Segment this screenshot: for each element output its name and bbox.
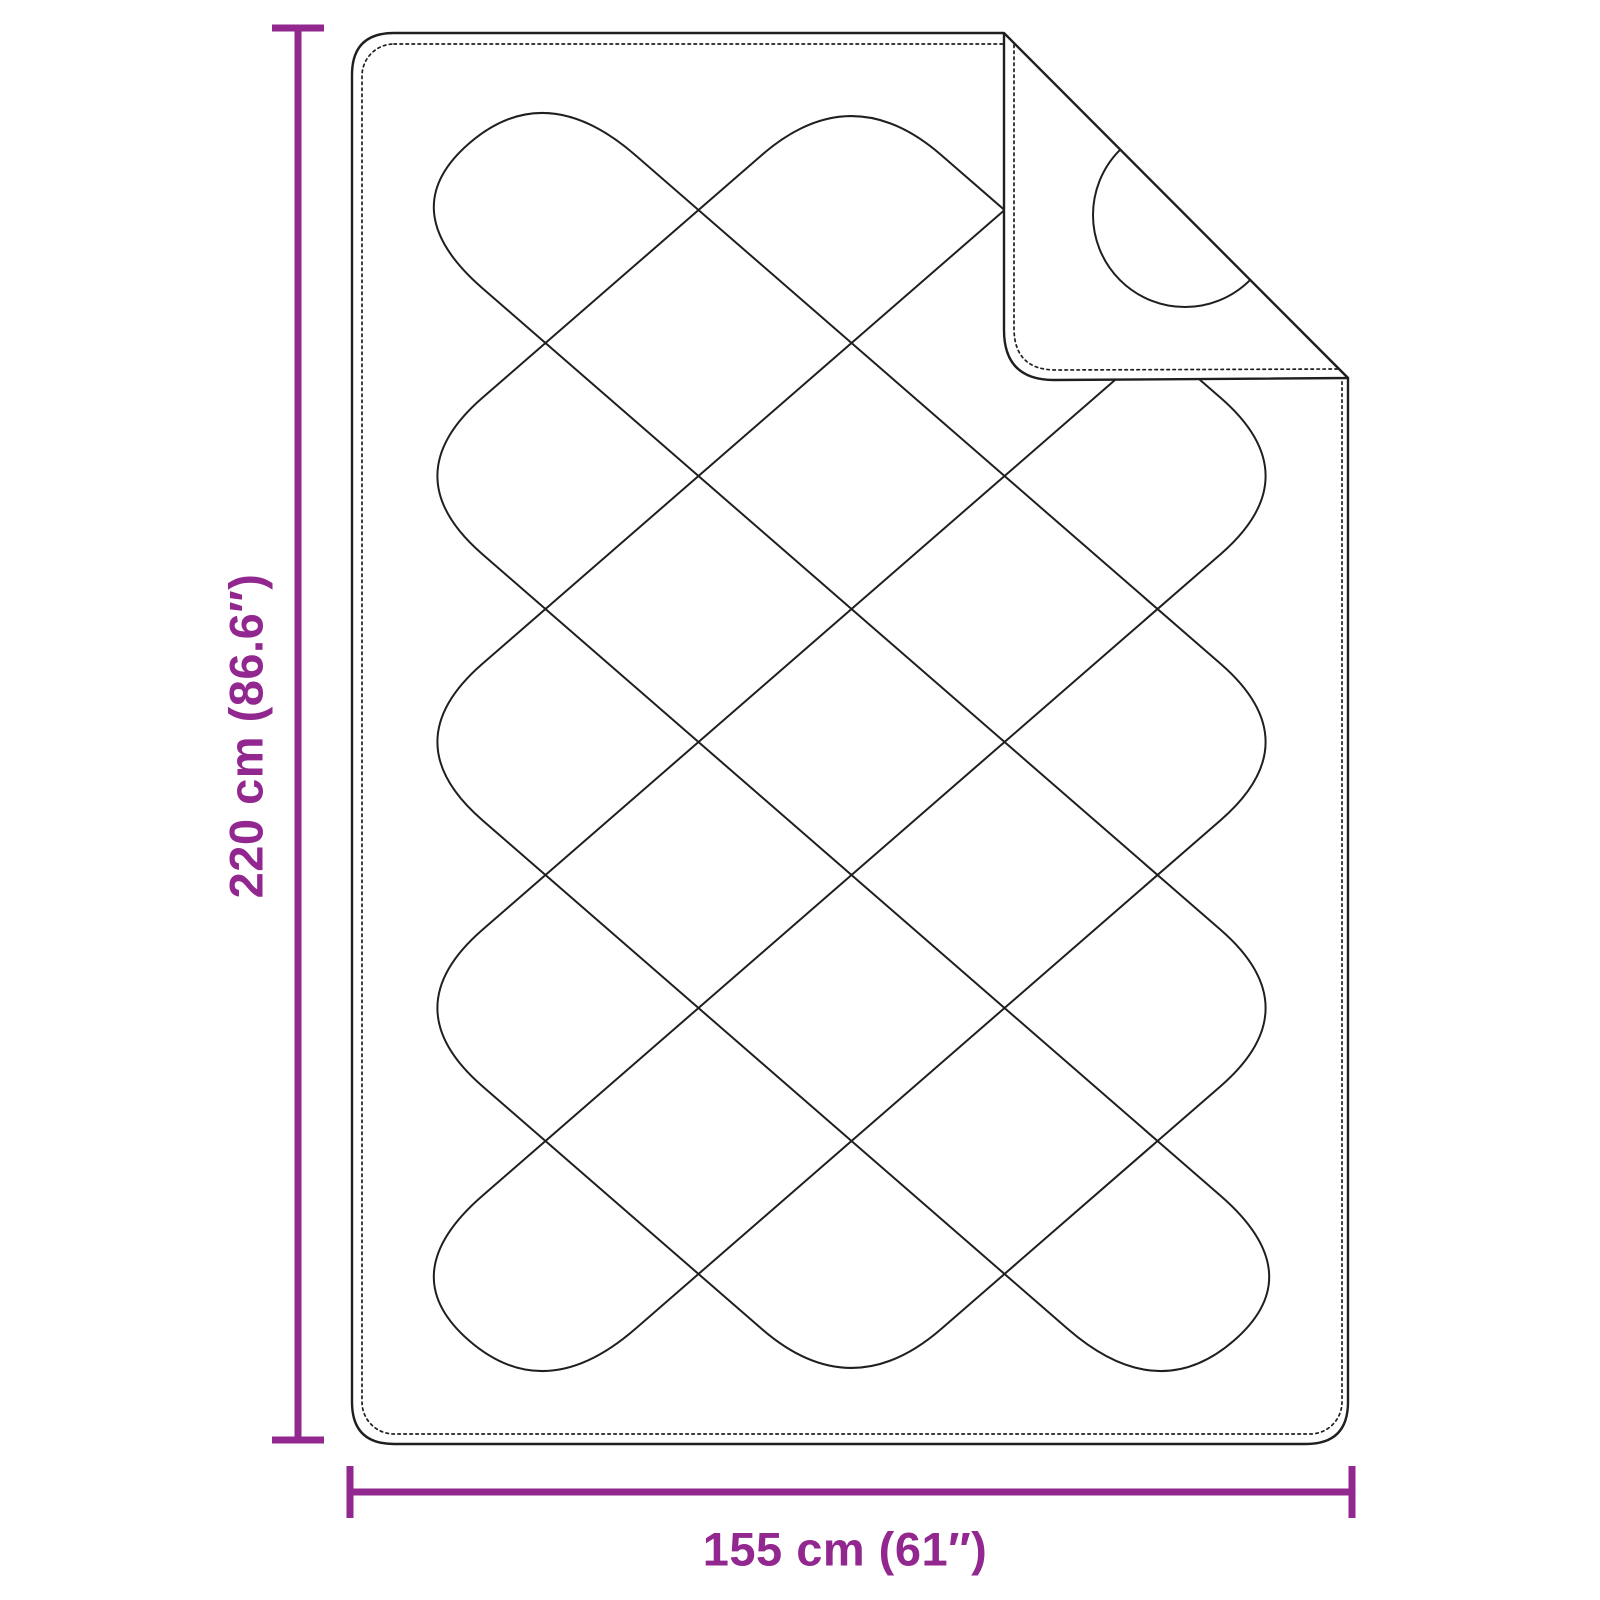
width-dimension-line [350,1466,1352,1518]
width-label: 155 cm (61″) [703,1523,988,1576]
height-dimension-line [272,28,324,1440]
diagram-canvas: 220 cm (86.6″) 155 cm (61″) [0,0,1600,1600]
height-label: 220 cm (86.6″) [220,574,273,899]
blanket [352,33,1348,1444]
folded-corner-flap [1004,33,1348,380]
product-dimension-diagram: 220 cm (86.6″) 155 cm (61″) [0,0,1600,1600]
